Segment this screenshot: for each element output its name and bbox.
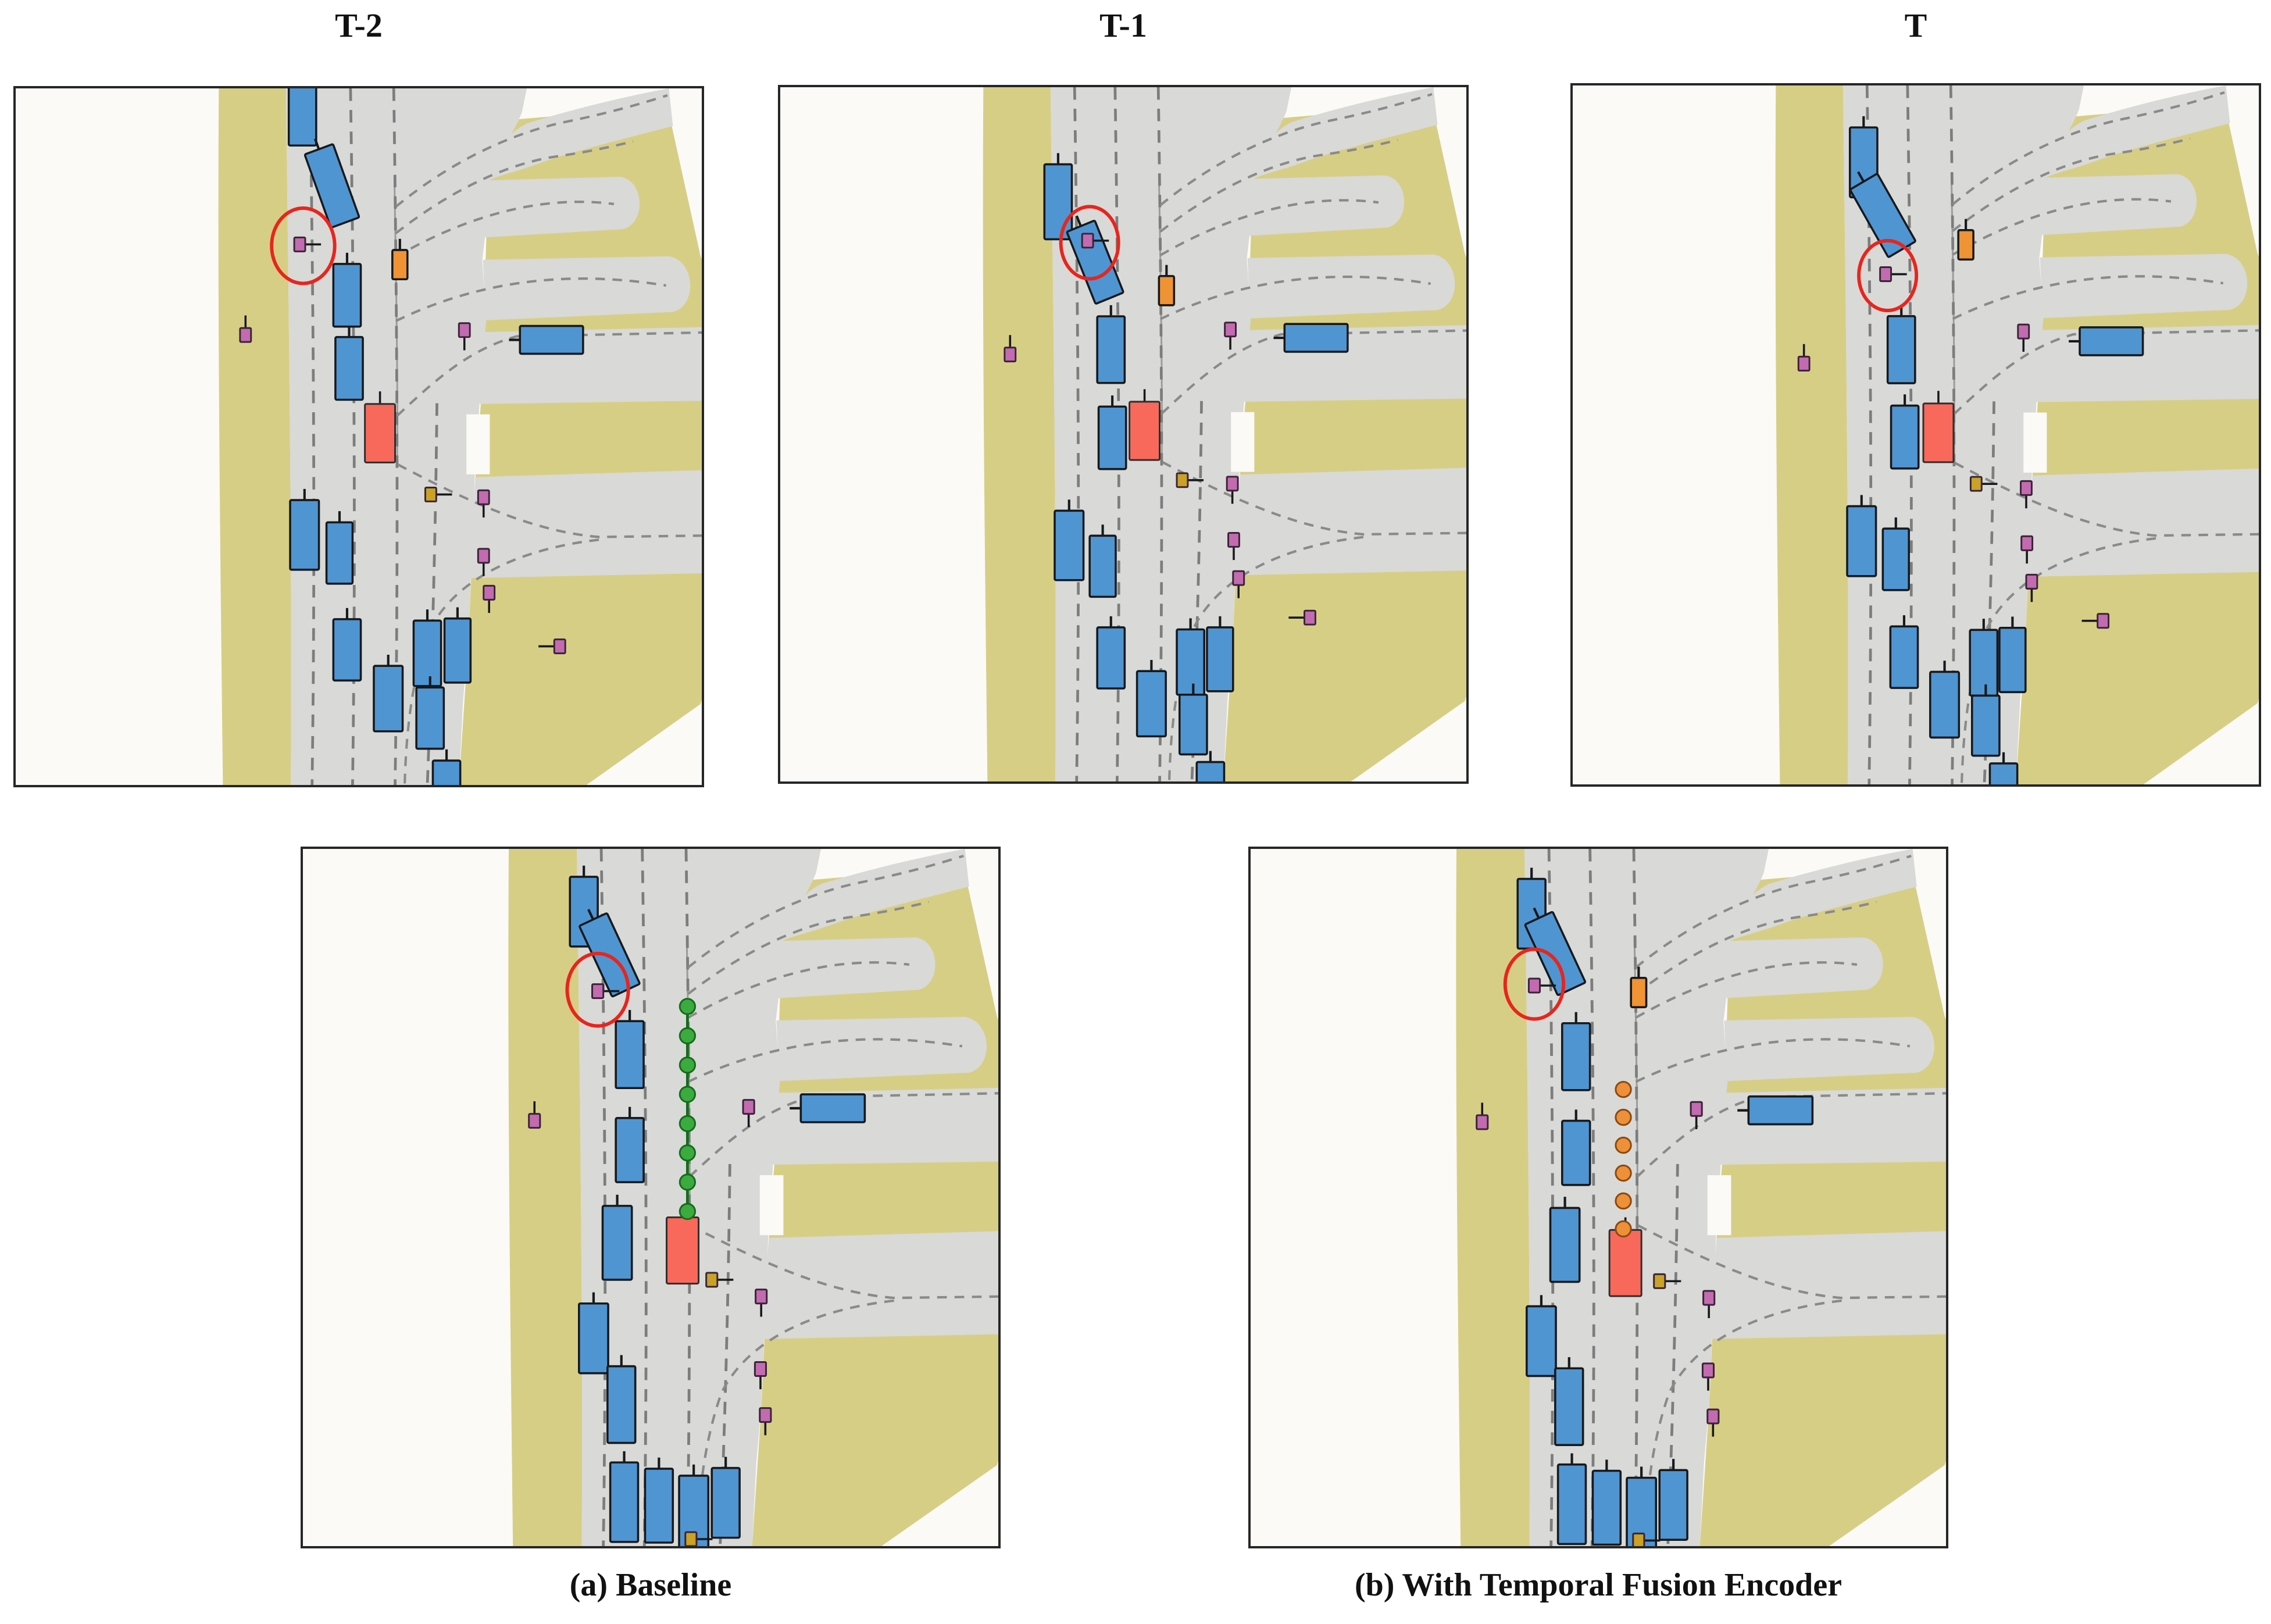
vehicle-body: [1972, 695, 1999, 755]
pedestrian-body: [1005, 348, 1016, 362]
vehicle-body: [1890, 626, 1918, 688]
scene-baseline: [303, 849, 998, 1546]
vehicle: [602, 1195, 631, 1280]
pedestrian-body: [2098, 614, 2109, 628]
prediction-dot: [680, 1087, 695, 1102]
panel-t: [1570, 83, 2261, 787]
vehicle: [1550, 1197, 1579, 1282]
vehicle-body: [1891, 406, 1919, 469]
vehicle-body: [333, 619, 360, 680]
vehicle-body: [1097, 316, 1124, 383]
prediction-dot: [1616, 1109, 1631, 1125]
prediction-dot: [1616, 1193, 1631, 1208]
prediction-dot: [1616, 1082, 1631, 1097]
vehicle-body: [433, 761, 460, 785]
vehicle-body: [1044, 165, 1072, 240]
map-branch-4: [1709, 1231, 1946, 1339]
vehicle-body: [1592, 1471, 1620, 1545]
map-left-shoulder: [508, 849, 582, 1546]
pedestrian-body: [592, 984, 604, 998]
vehicle-body: [1177, 630, 1204, 695]
pedestrian-body: [1798, 356, 1809, 370]
vehicle: [2069, 327, 2143, 355]
map-branch-1: [778, 937, 935, 998]
pedestrian-body: [1305, 611, 1316, 624]
vehicle-body: [712, 1468, 740, 1538]
vehicle-body: [416, 687, 444, 748]
vehicle: [790, 1094, 865, 1122]
vehicle-body: [608, 1366, 635, 1443]
map-branch-1: [484, 177, 640, 237]
map-branch-1: [1249, 176, 1404, 236]
vehicle-body: [1197, 762, 1224, 781]
panel-temporal-fusion: [1248, 847, 1948, 1548]
vehicle: [1562, 1012, 1590, 1090]
pedestrian-body: [1970, 477, 1981, 491]
vehicle: [333, 608, 360, 681]
vehicle: [333, 253, 360, 327]
pedestrian-body: [743, 1100, 754, 1114]
vehicle-body: [1207, 627, 1233, 691]
ego-body: [365, 404, 395, 463]
pedestrian-body: [1708, 1409, 1719, 1423]
pedestrian-body: [1633, 1533, 1644, 1546]
vehicle-body: [1558, 1465, 1586, 1544]
vehicle-body: [1562, 1121, 1590, 1185]
prediction-dot: [680, 1145, 695, 1161]
vehicle: [1099, 395, 1126, 469]
pedestrian-body: [1880, 267, 1891, 281]
vehicle-body: [1055, 511, 1084, 580]
vehicle-body: [1090, 536, 1116, 597]
prediction-dot: [680, 1204, 695, 1219]
vehicle: [608, 1355, 635, 1443]
vehicle-body: [1847, 506, 1876, 576]
vehicle: [289, 88, 316, 145]
panel-t-1: [778, 85, 1469, 784]
vehicle: [509, 326, 583, 354]
vehicle: [290, 489, 319, 570]
vehicle-body: [413, 620, 441, 686]
vehicle: [1527, 1295, 1556, 1376]
vehicle-body: [1958, 230, 1973, 259]
vehicle-body: [290, 500, 319, 570]
map-branch-4: [761, 1231, 998, 1339]
vehicle-body: [1930, 672, 1959, 737]
pedestrian-body: [529, 1114, 540, 1128]
map-branch-1: [2041, 174, 2197, 235]
vehicle: [445, 608, 471, 683]
pedestrian-body: [1082, 234, 1093, 248]
panel-title-t: T: [1570, 1, 2261, 50]
vehicle: [374, 655, 403, 731]
vehicle-body: [616, 1118, 644, 1182]
map-road-gap: [1231, 412, 1254, 472]
vehicle: [1890, 615, 1918, 688]
vehicle: [1044, 153, 1072, 239]
panel-title-t2: T-2: [13, 1, 704, 50]
vehicle-body: [445, 619, 471, 683]
pedestrian-body: [484, 586, 495, 599]
vehicle: [1930, 661, 1959, 737]
vehicle-body: [602, 1206, 631, 1280]
prediction-dot: [1616, 1165, 1631, 1180]
vehicle-body: [1159, 276, 1174, 305]
vehicle: [1090, 524, 1116, 597]
vehicle: [1562, 1109, 1590, 1184]
scene-temporal-fusion: [1251, 849, 1946, 1546]
pedestrian-body: [2022, 536, 2033, 550]
vehicle: [416, 676, 444, 749]
pedestrian-body: [685, 1532, 697, 1546]
vehicle-body: [1999, 628, 2026, 693]
vehicle: [1888, 305, 1915, 383]
vehicle-body: [335, 337, 363, 400]
vehicle: [1999, 617, 2026, 693]
vehicle: [1555, 1357, 1583, 1445]
pedestrian-body: [1477, 1115, 1488, 1129]
scene-t-1: [780, 87, 1466, 781]
vehicle-body: [1659, 1470, 1687, 1540]
vehicle-body: [610, 1462, 638, 1542]
pedestrian-body: [1225, 323, 1236, 337]
vehicle: [1558, 1454, 1586, 1544]
pedestrian-body: [1654, 1274, 1665, 1288]
vehicle-body: [1527, 1307, 1556, 1376]
vehicle-body: [579, 1304, 608, 1373]
pedestrian-body: [459, 323, 470, 337]
scene-t: [1573, 85, 2259, 784]
pedestrian-body: [706, 1273, 717, 1287]
vehicle-body: [1550, 1208, 1579, 1282]
vehicle-body: [1748, 1097, 1812, 1125]
vehicle: [616, 1010, 644, 1088]
vehicle: [335, 326, 363, 400]
ego-body: [1130, 402, 1160, 460]
pedestrian-body: [2021, 481, 2032, 495]
pedestrian-body: [2026, 574, 2037, 588]
vehicle: [1097, 616, 1124, 688]
vehicle-body: [801, 1094, 865, 1122]
vehicle-body: [1970, 630, 1997, 695]
vehicle-body: [2080, 327, 2143, 355]
map-left-shoulder: [1776, 85, 1848, 784]
map-road-gap: [2023, 413, 2047, 473]
panel-baseline: [301, 847, 1001, 1548]
ego-body: [1923, 404, 1954, 462]
vehicle-body: [289, 88, 316, 145]
vehicle-body: [392, 250, 408, 279]
vehicle: [1737, 1097, 1812, 1125]
pedestrian-body: [1702, 1364, 1713, 1377]
pedestrian-body: [1691, 1102, 1702, 1116]
vehicle-body: [333, 264, 360, 327]
vehicle-body: [1888, 316, 1915, 383]
vehicle: [1592, 1459, 1620, 1544]
vehicle-body: [374, 666, 403, 731]
vehicle-body: [1883, 529, 1909, 590]
map-branch-2: [483, 256, 691, 320]
map-road-gap: [1708, 1175, 1731, 1235]
map-branch-4: [468, 470, 702, 579]
pedestrian-body: [1229, 533, 1240, 547]
map-road-gap: [760, 1175, 784, 1235]
vehicle-body: [1562, 1023, 1590, 1090]
pedestrian-body: [240, 328, 251, 342]
vehicle: [1207, 616, 1233, 691]
vehicle-body: [1284, 324, 1348, 352]
panel-title-t1: T-1: [778, 1, 1469, 50]
pedestrian-body: [760, 1408, 771, 1422]
pedestrian-body: [294, 237, 305, 251]
pedestrian-body: [478, 490, 489, 504]
vehicle: [1055, 499, 1084, 580]
vehicle: [1972, 684, 1999, 756]
vehicle-body: [645, 1469, 673, 1543]
map-branch-2: [1248, 255, 1455, 319]
ego-body: [667, 1218, 699, 1284]
ego-body: [1609, 1230, 1641, 1296]
vehicle-body: [1137, 671, 1166, 736]
map-branch-2: [776, 1017, 986, 1081]
vehicle-body: [327, 522, 353, 583]
vehicle-body: [1631, 978, 1646, 1007]
pedestrian-body: [756, 1290, 767, 1304]
pedestrian-body: [1233, 571, 1244, 585]
vehicle-body: [616, 1021, 644, 1088]
vehicle-body: [1990, 763, 2017, 784]
prediction-dot: [680, 1175, 695, 1190]
vehicle: [1970, 619, 1997, 695]
pedestrian-body: [1704, 1291, 1715, 1305]
scene-t-2: [16, 88, 702, 785]
vehicle: [645, 1458, 673, 1543]
pedestrian-body: [1227, 477, 1238, 491]
pedestrian-body: [755, 1362, 766, 1376]
prediction-dot: [680, 1058, 695, 1073]
prediction-dot: [680, 1028, 695, 1043]
pedestrian-body: [2018, 324, 2029, 338]
pedestrian-body: [554, 640, 565, 654]
vehicle: [1097, 305, 1124, 383]
panel-caption-temporal-fusion: (b) With Temporal Fusion Encoder: [1248, 1561, 1948, 1609]
prediction-dot: [1616, 1221, 1631, 1236]
pedestrian-body: [1177, 473, 1188, 487]
prediction-dot: [680, 999, 695, 1014]
map-branch-4: [1233, 467, 1466, 575]
prediction-dot: [680, 1116, 695, 1131]
vehicle: [327, 511, 353, 584]
map-branch-4: [2025, 469, 2259, 577]
map-branch-2: [1724, 1017, 1934, 1081]
panel-caption-baseline: (a) Baseline: [301, 1561, 1001, 1609]
vehicle: [1883, 517, 1909, 590]
vehicle-body: [1180, 695, 1207, 755]
vehicle-body: [1555, 1368, 1583, 1445]
map-branch-2: [2040, 254, 2248, 319]
pedestrian-body: [478, 549, 489, 563]
prediction-dot: [1616, 1137, 1631, 1152]
vehicle-body: [1097, 627, 1124, 688]
vehicle: [1177, 618, 1204, 694]
vehicle-body: [520, 326, 583, 354]
pedestrian-body: [1529, 979, 1540, 993]
vehicle: [579, 1293, 608, 1373]
map-left-shoulder: [219, 88, 291, 785]
vehicle: [1847, 495, 1876, 576]
vehicle: [610, 1451, 638, 1542]
vehicle: [1137, 660, 1166, 736]
map-road-gap: [466, 415, 490, 474]
vehicle: [616, 1107, 644, 1182]
vehicle-body: [1099, 406, 1126, 469]
vehicle: [712, 1457, 740, 1538]
vehicle: [1180, 684, 1207, 755]
vehicle: [1273, 324, 1347, 352]
vehicle: [1659, 1459, 1687, 1540]
pedestrian-body: [425, 487, 436, 501]
vehicle: [413, 609, 441, 686]
vehicle: [1891, 394, 1919, 468]
map-branch-1: [1726, 937, 1883, 998]
panel-t-2: [13, 86, 704, 787]
